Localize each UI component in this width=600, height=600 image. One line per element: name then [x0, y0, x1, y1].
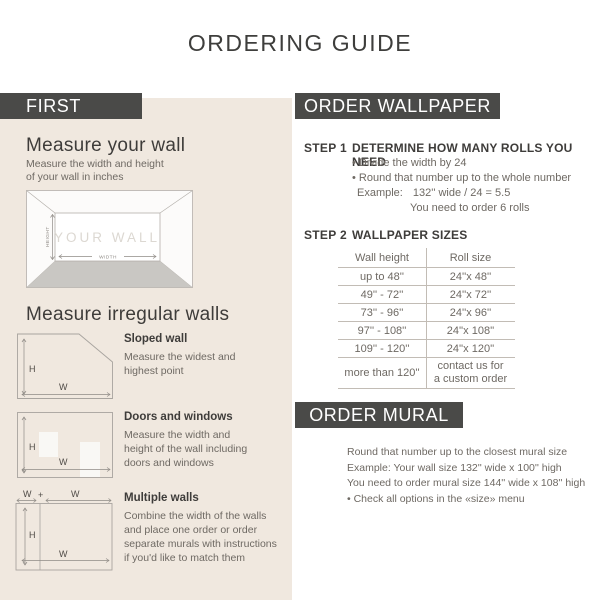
order-wallpaper-header: ORDER WALLPAPER: [295, 93, 500, 119]
multiple-height-label: H: [29, 530, 36, 540]
door-shape: [80, 442, 100, 477]
col-header-wall-height: Wall height: [338, 252, 426, 264]
height-dimension-label: HEIGHT: [45, 226, 51, 247]
mural-line-1: Round that number up to the closest mura…: [347, 445, 585, 461]
doors-windows-lines: Measure the width and height of the wall…: [124, 428, 292, 470]
step1-example-result: You need to order 6 rolls: [410, 202, 529, 214]
col-header-roll-size: Roll size: [426, 252, 515, 264]
doors-width-label: W: [59, 457, 68, 467]
sloped-wall-lines: Measure the widest and highest point: [124, 350, 292, 378]
multiple-walls-item: Multiple walls Combine the width of the …: [124, 492, 292, 565]
order-mural-text: Round that number up to the closest mura…: [347, 445, 585, 507]
multiple-walls-lines: Combine the width of the walls and place…: [124, 509, 292, 565]
multiple-walls-title: Multiple walls: [124, 492, 292, 504]
order-mural-label: ORDER MURAL: [309, 405, 449, 426]
custom-order-cell: contact us for a custom order: [426, 360, 515, 386]
wall-perspective-diagram: YOUR WALL HEIGHT WIDTH: [26, 190, 193, 288]
step1-example: Example:132'' wide / 24 = 5.5: [357, 187, 510, 199]
sloped-wall-diagram: H W: [17, 333, 113, 399]
doors-windows-diagram: H W: [17, 412, 113, 478]
irregular-walls-heading: Measure irregular walls: [26, 304, 229, 326]
window-shape: [39, 432, 58, 457]
example-value: 132'' wide / 24 = 5.5: [413, 187, 510, 199]
order-mural-header: ORDER MURAL: [295, 402, 463, 428]
page-title: ORDERING GUIDE: [0, 30, 600, 57]
step2-label: STEP 2: [304, 228, 347, 242]
doors-windows-title: Doors and windows: [124, 411, 292, 423]
mural-line-4: • Check all options in the «size» menu: [347, 492, 585, 508]
sloped-height-label: H: [29, 364, 36, 374]
multiple-walls-diagram: W + W H W: [15, 487, 113, 571]
multiple-width2-label: W: [71, 489, 80, 499]
measure-wall-heading: Measure your wall: [26, 135, 185, 157]
measure-wall-desc-line2: of your wall in inches: [26, 171, 164, 184]
wallpaper-sizes-table: Wall height Roll size up to 48'' 24''x 4…: [338, 248, 515, 389]
your-wall-label: YOUR WALL: [54, 230, 160, 245]
table-column-divider: [426, 248, 427, 389]
mural-line-3: You need to order mural size 144'' wide …: [347, 476, 585, 492]
step1-bullets: • Divide the width by 24 • Round that nu…: [352, 156, 571, 186]
step1-bullet-2: • Round that number up to the whole numb…: [352, 171, 571, 186]
sloped-wall-title: Sloped wall: [124, 333, 292, 345]
step1-label: STEP 1: [304, 141, 347, 155]
doors-height-label: H: [29, 442, 36, 452]
width-dimension-label: WIDTH: [99, 254, 117, 260]
sloped-wall-item: Sloped wall Measure the widest and highe…: [124, 333, 292, 378]
measure-wall-desc-line1: Measure the width and height: [26, 158, 164, 171]
first-section-label: FIRST: [26, 96, 81, 117]
multiple-width-combined-label: W: [59, 549, 68, 559]
doors-windows-item: Doors and windows Measure the width and …: [124, 411, 292, 470]
order-wallpaper-label: ORDER WALLPAPER: [304, 96, 491, 117]
multiple-width1-label: W: [23, 489, 32, 499]
step1-bullet-1: • Divide the width by 24: [352, 156, 571, 171]
first-section-header: FIRST: [0, 93, 142, 119]
ordering-guide-page: { "title": "ORDERING GUIDE", "left": { "…: [0, 0, 600, 600]
multiple-plus-label: +: [38, 490, 43, 500]
example-label: Example:: [357, 187, 403, 199]
mural-line-2: Example: Your wall size 132'' wide x 100…: [347, 461, 585, 477]
step2-title: WALLPAPER SIZES: [352, 228, 467, 242]
measure-wall-description: Measure the width and height of your wal…: [26, 158, 164, 183]
sloped-width-label: W: [59, 382, 68, 392]
